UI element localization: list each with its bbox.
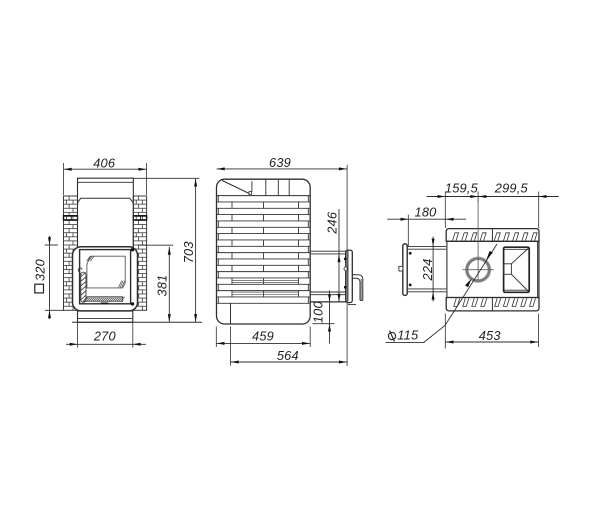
- svg-text:320: 320: [33, 258, 48, 281]
- svg-text:180: 180: [415, 205, 438, 220]
- svg-text:564: 564: [277, 348, 299, 363]
- svg-text:159,5: 159,5: [445, 181, 479, 196]
- svg-text:299,5: 299,5: [494, 181, 529, 196]
- svg-text:639: 639: [269, 155, 291, 170]
- svg-text:703: 703: [181, 241, 196, 263]
- svg-text:381: 381: [154, 275, 169, 297]
- svg-text:100: 100: [310, 301, 325, 324]
- svg-text:459: 459: [252, 328, 274, 343]
- svg-text:246: 246: [324, 211, 339, 235]
- svg-text:270: 270: [93, 329, 117, 344]
- svg-text:453: 453: [479, 328, 501, 343]
- svg-text:115: 115: [397, 328, 419, 343]
- svg-text:406: 406: [93, 155, 116, 170]
- svg-text:224: 224: [420, 259, 435, 282]
